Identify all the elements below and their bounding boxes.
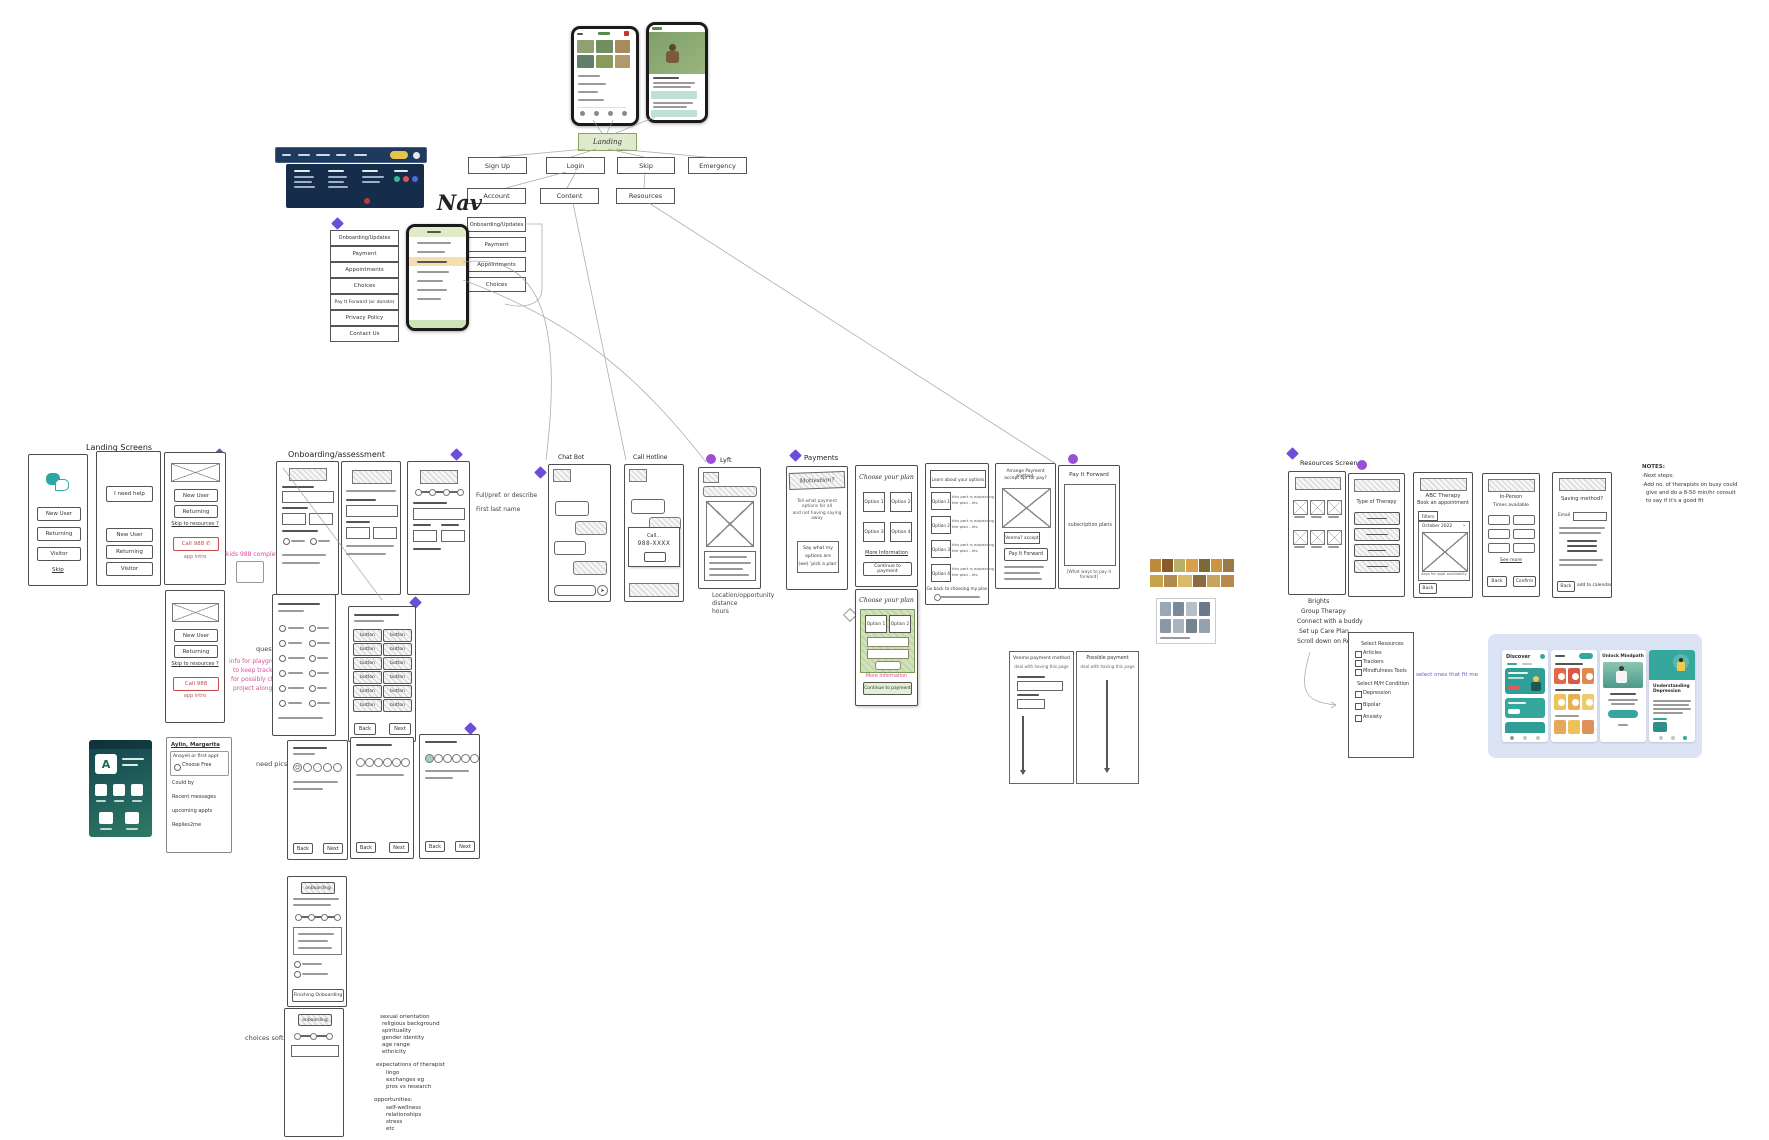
flow-node-skip[interactable]: Skip <box>617 157 675 174</box>
choice-button[interactable]: button <box>383 657 412 670</box>
emoji-circle[interactable] <box>356 758 365 767</box>
menu-row[interactable] <box>417 242 451 244</box>
subscription-plans-box[interactable]: subscription plans <box>1064 484 1116 566</box>
send-icon[interactable]: ➤ <box>597 585 608 596</box>
time-slot[interactable] <box>1513 515 1535 525</box>
input-field[interactable] <box>413 530 437 542</box>
menu-item-choices[interactable]: Choices <box>330 278 399 294</box>
plan-option-2[interactable]: Option 2 <box>931 516 951 534</box>
choice-button[interactable]: button <box>353 685 382 698</box>
wireframe-onboarding-form-1[interactable] <box>276 461 339 595</box>
play-icon[interactable] <box>1586 699 1593 706</box>
wireframe-mood-3[interactable]: Back Next <box>419 734 480 859</box>
wireframe-times-available[interactable]: In-Person Times available See more Back … <box>1482 473 1540 597</box>
back-button[interactable]: Back <box>1419 583 1437 594</box>
back-button[interactable]: Back <box>425 841 445 852</box>
messages-icon[interactable] <box>95 784 107 796</box>
nav-cta-button[interactable] <box>390 151 408 159</box>
call-confirm-button[interactable] <box>644 552 666 562</box>
visitor-button[interactable]: Visitor <box>106 562 153 576</box>
photo-thumb[interactable] <box>596 40 613 53</box>
stepper-dot[interactable] <box>443 489 450 496</box>
tabbar-icon[interactable] <box>1536 736 1540 740</box>
next-button[interactable]: Next <box>455 841 475 852</box>
emoji-circle-selected[interactable] <box>425 754 434 763</box>
plan-option-4[interactable]: Option 4 <box>931 564 951 582</box>
input-field[interactable] <box>373 527 397 539</box>
time-slot[interactable] <box>1513 529 1535 539</box>
card-line: Anayeli or first appt <box>173 754 218 759</box>
abc-therapy-label: ABC Therapy <box>1414 493 1472 499</box>
emoji-circle[interactable] <box>365 758 374 767</box>
circle-marker[interactable] <box>1068 454 1078 464</box>
tabbar-icon[interactable] <box>1659 736 1663 740</box>
text-line <box>425 770 469 772</box>
home-icon[interactable] <box>580 111 585 116</box>
filters-button[interactable]: Filters <box>1418 511 1438 521</box>
emoji-circle[interactable] <box>333 763 342 772</box>
menu-row[interactable] <box>417 280 443 282</box>
wireframe-arrange-payment[interactable]: Arrange Payment method, accept opt for p… <box>995 463 1056 589</box>
time-slot[interactable] <box>1488 515 1510 525</box>
plan-option-3[interactable]: Option 3 <box>931 540 951 558</box>
strip-photo <box>1174 559 1185 572</box>
add-to-calendar-link[interactable]: add to calendar <box>1577 583 1612 588</box>
input-field[interactable] <box>346 527 370 539</box>
menu-row[interactable] <box>417 289 447 291</box>
more-information-link[interactable]: More Information <box>856 674 917 679</box>
audio-card[interactable] <box>1554 720 1566 734</box>
call-988-button[interactable]: Call 988 ✆ <box>173 537 219 551</box>
flow-node-resources[interactable]: Resources <box>616 188 675 204</box>
plan-option-1[interactable]: Option 1 <box>863 492 885 512</box>
flow-node-signup[interactable]: Sign Up <box>468 157 527 174</box>
social-icon-red[interactable] <box>403 176 409 182</box>
emoji-circle[interactable] <box>374 758 383 767</box>
plan-row[interactable] <box>867 649 909 659</box>
usage-icon[interactable] <box>99 812 113 824</box>
new-user-button[interactable]: New User <box>106 528 153 542</box>
audio-card[interactable] <box>1568 694 1580 710</box>
flow-node-appointments[interactable]: Appointments <box>467 257 526 272</box>
time-slot[interactable] <box>1488 529 1510 539</box>
radio-placeholder[interactable] <box>279 670 286 677</box>
input-field[interactable] <box>282 491 334 503</box>
tabbar-icon-active[interactable] <box>1683 736 1687 740</box>
venmo-method-card[interactable]: Venmo payment method deal with having th… <box>1009 651 1074 784</box>
screen-understanding-depression[interactable]: Understanding Depression <box>1649 650 1695 742</box>
continue-payment-button[interactable]: Continue to payment <box>863 562 912 576</box>
audio-card[interactable] <box>1582 668 1594 684</box>
wireframe-resources-grid[interactable] <box>1288 471 1346 595</box>
more-information-link[interactable]: More Information <box>856 550 917 556</box>
wireframe-mood-1[interactable]: ☺ Back Next <box>287 740 348 860</box>
app-home-screenshot[interactable]: A <box>89 740 152 837</box>
email-input[interactable] <box>1573 512 1607 521</box>
checkbox[interactable] <box>1355 651 1362 658</box>
wireframe-book-appointment[interactable]: ABC Therapy Book an appointment Filters … <box>1413 472 1473 598</box>
phone-mockup-article[interactable] <box>646 22 708 123</box>
wireframe-motivation[interactable]: Motivation? Tell what payment options fo… <box>786 466 848 590</box>
emoji-circle[interactable] <box>470 754 479 763</box>
diamond-marker[interactable] <box>450 448 463 461</box>
emoji-circle[interactable] <box>383 758 392 767</box>
choice-button[interactable]: button <box>383 643 412 656</box>
emoji-circle[interactable] <box>313 763 322 772</box>
flow-node-content[interactable]: Content <box>540 188 599 204</box>
checkbox[interactable] <box>1355 660 1362 667</box>
wireframe-onboarding-tall-2[interactable]: onboarding <box>284 1008 344 1137</box>
checkbox[interactable] <box>1355 691 1362 698</box>
audio-card[interactable] <box>1554 694 1566 710</box>
resource-thumb[interactable] <box>1293 530 1308 545</box>
input-field[interactable] <box>1017 681 1063 691</box>
input-field[interactable] <box>309 513 333 525</box>
time-slot[interactable] <box>1513 543 1535 553</box>
chevron-icon[interactable]: › <box>1463 523 1465 529</box>
account-icon[interactable] <box>125 812 139 824</box>
see-more-link[interactable]: See more <box>1483 558 1539 563</box>
confirm-button[interactable]: Confirm <box>1513 576 1536 587</box>
photo-thumb[interactable] <box>615 55 630 68</box>
skip-resources-link[interactable]: Skip to resources ? <box>171 661 219 667</box>
visitor-button[interactable]: Visitor <box>37 547 81 561</box>
input-field[interactable] <box>282 513 306 525</box>
circle-marker[interactable] <box>706 454 716 464</box>
choice-button[interactable]: button <box>383 629 412 642</box>
profile-dot-icon[interactable] <box>1540 654 1545 659</box>
free-link-line[interactable] <box>1618 724 1628 726</box>
tabbar-home-icon[interactable] <box>1510 736 1514 740</box>
wireframe-pay-it-forward[interactable]: Pay It Forward subscription plans [What … <box>1058 465 1120 589</box>
underline <box>1567 545 1597 547</box>
photo-thumb[interactable] <box>615 40 630 53</box>
skip-resources-link[interactable]: Skip to resources ? <box>171 521 219 527</box>
possible-payment-card[interactable]: Possible payment deal with having this p… <box>1076 651 1139 784</box>
nav-avatar[interactable] <box>413 152 420 159</box>
new-user-button[interactable]: New User <box>37 507 81 521</box>
wireframe-question-list[interactable] <box>272 594 336 736</box>
topic-card[interactable] <box>1505 698 1545 718</box>
social-icon-blue[interactable] <box>412 176 418 182</box>
plan-option-2[interactable]: Option 2 <box>889 615 911 633</box>
input-field[interactable] <box>291 1045 339 1057</box>
calendar-panel[interactable]: October 2022 › days for appt availabilit… <box>1418 521 1470 581</box>
wireframe-button-grid[interactable]: buttonbutton buttonbutton buttonbutton b… <box>348 606 416 742</box>
returning-button[interactable]: Returning <box>106 545 153 559</box>
screen-audio-lessons[interactable] <box>1551 650 1597 742</box>
choice-button[interactable]: button <box>353 629 382 642</box>
diamond-marker[interactable] <box>331 217 344 230</box>
new-user-button[interactable]: New User <box>174 629 218 642</box>
search-icon[interactable] <box>594 111 599 116</box>
emoji-circle[interactable] <box>461 754 470 763</box>
stepper-dot[interactable] <box>415 489 422 496</box>
input-field[interactable] <box>441 530 465 542</box>
wireframe-onboarding-tall-1[interactable]: onboarding Finishing Onboarding <box>287 876 347 1007</box>
therapy-option-button[interactable] <box>1354 544 1400 557</box>
plan-option-1[interactable]: Option 1 <box>931 492 951 510</box>
chat-input[interactable] <box>554 585 596 596</box>
call-modal[interactable]: Call... 988-XXXX <box>628 527 680 567</box>
choice-button[interactable]: button <box>383 699 412 712</box>
resource-thumb[interactable] <box>1327 500 1342 515</box>
radio-placeholder[interactable] <box>294 971 301 978</box>
flow-node-landing[interactable]: Landing <box>578 133 637 151</box>
wireframe-saving-method[interactable]: Saving method? Email Back add to calenda… <box>1552 472 1612 598</box>
read-chip[interactable] <box>1508 685 1519 690</box>
wireframe-landing-logo[interactable]: New User Returning Visitor Skip <box>28 454 88 586</box>
play-icon[interactable] <box>1572 699 1579 706</box>
resource-thumb[interactable] <box>1310 530 1325 545</box>
app-tile-A[interactable]: A <box>95 754 117 774</box>
checkbox[interactable] <box>1355 669 1362 676</box>
audio-card[interactable] <box>1568 720 1580 734</box>
stepper-dot[interactable] <box>321 914 328 921</box>
plan-row[interactable] <box>867 637 909 647</box>
say-options-box[interactable]: Say what my options are (we) 'pick a pla… <box>797 541 839 573</box>
plan-pill[interactable] <box>875 661 901 670</box>
back-button[interactable]: Back <box>1557 581 1575 592</box>
discover-title: Discover <box>1506 654 1530 660</box>
diamond-marker[interactable] <box>789 449 802 462</box>
stepper-dot[interactable] <box>429 489 436 496</box>
stepper-dot[interactable] <box>308 914 315 921</box>
back-button[interactable]: Back <box>354 723 376 735</box>
menu-row[interactable] <box>417 251 445 253</box>
next-button[interactable]: Next <box>389 723 411 735</box>
topic-card-partial[interactable] <box>1505 722 1545 733</box>
play-icon[interactable] <box>1572 673 1579 680</box>
go-back-link[interactable]: Go back to choosing my plan <box>926 586 988 591</box>
emoji-circle[interactable] <box>452 754 461 763</box>
subscribe-button[interactable] <box>1608 710 1638 718</box>
resource-thumb[interactable] <box>1327 530 1342 545</box>
emoji-circle[interactable] <box>323 763 332 772</box>
flow-node-payment[interactable]: Payment <box>467 237 526 252</box>
tabbar-icon[interactable] <box>1671 736 1675 740</box>
stepper-dot[interactable] <box>310 1033 317 1040</box>
website-footer-screenshot[interactable] <box>286 164 424 208</box>
stepper-dot[interactable] <box>294 1033 301 1040</box>
checkbox[interactable] <box>1355 703 1362 710</box>
radio-placeholder[interactable] <box>279 685 286 692</box>
photo-thumb[interactable] <box>577 40 594 53</box>
skip-link[interactable]: Skip <box>52 567 64 573</box>
therapy-option-button[interactable] <box>1354 528 1400 541</box>
tabbar-icon[interactable] <box>1523 736 1527 740</box>
choice-button[interactable]: button <box>353 657 382 670</box>
next-button[interactable]: Next <box>389 842 409 853</box>
topic-card[interactable] <box>1505 668 1545 694</box>
emoji-circle[interactable] <box>303 763 312 772</box>
menu-item-appointments[interactable]: Appointments <box>330 262 399 278</box>
wireframe-landing-help[interactable]: I need help New User Returning Visitor <box>96 451 161 586</box>
stepper-dot[interactable] <box>326 1033 333 1040</box>
related-thumb[interactable] <box>1653 722 1667 732</box>
plan-option-2[interactable]: Option 2 <box>890 492 912 512</box>
next-button[interactable]: Next <box>323 843 343 854</box>
plan-option-1[interactable]: Option 1 <box>865 615 887 633</box>
phone-mockup-home[interactable] <box>571 26 639 126</box>
wireframe-landing-intro[interactable]: New User Returning Skip to resources ? C… <box>164 452 226 585</box>
photo-thumb[interactable] <box>596 55 613 68</box>
choice-button[interactable]: button <box>383 685 412 698</box>
wireframe-onboarding-form-2[interactable] <box>341 461 401 595</box>
strip-photo <box>1199 559 1210 572</box>
diamond-marker[interactable] <box>534 466 547 479</box>
tab-pill[interactable] <box>1579 653 1593 659</box>
call-988-button[interactable]: Call 988 <box>173 677 219 691</box>
back-button[interactable]: Back <box>1487 576 1507 587</box>
radio-placeholder[interactable] <box>279 640 286 647</box>
plan-option-4[interactable]: Option 4 <box>890 522 912 542</box>
photo-thumb[interactable] <box>577 55 594 68</box>
diamond-marker[interactable] <box>464 722 477 735</box>
choice-button[interactable]: button <box>353 643 382 656</box>
audio-card[interactable] <box>1582 694 1594 710</box>
flow-node-choices[interactable]: Choices <box>467 277 526 292</box>
account-notes-card[interactable]: Aylin, Margarita Anayeli or first appt C… <box>166 737 232 853</box>
wireframe-onboarding-form-3[interactable] <box>407 461 470 595</box>
social-icon-teal[interactable] <box>394 176 400 182</box>
finish-onboarding-button[interactable]: Finishing Onboarding <box>292 989 344 1002</box>
list-row[interactable] <box>578 91 598 93</box>
play-icon[interactable] <box>1558 673 1565 680</box>
returning-button[interactable]: Returning <box>174 645 218 658</box>
plan-option-3[interactable]: Option 3 <box>863 522 885 542</box>
returning-button[interactable]: Returning <box>174 505 218 518</box>
empty-note-box[interactable] <box>236 561 264 583</box>
menu-row-highlighted[interactable] <box>409 257 466 266</box>
tab-active[interactable] <box>1507 663 1517 665</box>
time-slot[interactable] <box>1488 543 1510 553</box>
illustration-body <box>1531 682 1541 691</box>
wireframe-lyft[interactable] <box>698 467 761 589</box>
wireframe-landing-intro-2[interactable]: New User Returning Skip to resources ? C… <box>165 590 225 723</box>
checkbox[interactable] <box>1355 715 1362 722</box>
audio-card[interactable] <box>1582 720 1594 734</box>
heart-icon[interactable] <box>608 111 613 116</box>
therapy-option-button[interactable] <box>1354 512 1400 525</box>
choice-button[interactable]: button <box>353 671 382 684</box>
play-icon[interactable] <box>1558 699 1565 706</box>
contacts-icon[interactable] <box>131 784 143 796</box>
resource-thumb[interactable] <box>1293 500 1308 515</box>
list-row[interactable] <box>578 99 604 101</box>
radio-placeholder[interactable] <box>309 640 316 647</box>
lyft-caption-line: Location/opportunity <box>712 592 774 599</box>
menu-row[interactable] <box>417 298 441 300</box>
screen-unlock-mindpath[interactable]: Unlock Mindpath <box>1600 650 1646 742</box>
emoji-circle[interactable] <box>401 758 410 767</box>
slider-track[interactable] <box>940 596 980 598</box>
diamond-marker[interactable] <box>1286 447 1299 460</box>
continue-payment-button[interactable]: Continue to payment <box>863 682 912 695</box>
radio-placeholder[interactable] <box>309 700 316 707</box>
new-user-button[interactable]: New User <box>174 489 218 502</box>
wireframe-call-hotline[interactable]: Call... 988-XXXX <box>624 464 684 602</box>
flow-node-emergency[interactable]: Emergency <box>688 157 747 174</box>
pay-it-forward-button[interactable]: Pay It Forward <box>1004 548 1048 561</box>
input-field[interactable] <box>346 505 398 517</box>
circle-marker[interactable] <box>1357 460 1367 470</box>
wireframe-choose-plan[interactable]: Choose your plan Option 1 Option 2 Optio… <box>855 465 918 587</box>
returning-button[interactable]: Returning <box>37 527 81 541</box>
stepper-dot[interactable] <box>295 914 302 921</box>
wireframe-choose-plan-green[interactable]: Choose your plan Option 1 Option 2 More … <box>855 589 918 706</box>
stepper-dot[interactable] <box>334 914 341 921</box>
radio-placeholder[interactable] <box>279 655 286 662</box>
radio-placeholder[interactable] <box>174 764 181 771</box>
menu-item-privacy[interactable]: Privacy Policy <box>330 310 399 326</box>
choice-button[interactable]: button <box>383 671 412 684</box>
tab[interactable] <box>1522 663 1532 665</box>
wireframe-therapy-type[interactable]: Type of Therapy <box>1348 473 1405 597</box>
audio-card[interactable] <box>1554 668 1566 684</box>
radio-placeholder[interactable] <box>309 625 316 632</box>
profile-icon[interactable] <box>622 111 627 116</box>
radio-placeholder[interactable] <box>283 538 290 545</box>
radio-placeholder[interactable] <box>310 538 317 545</box>
calendar-icon[interactable] <box>113 784 125 796</box>
back-button[interactable]: Back <box>356 842 376 853</box>
select-resources-checklist[interactable]: Select Resources Articles Trackers Mindf… <box>1348 632 1414 758</box>
smiley-icon[interactable]: ☺ <box>293 763 302 772</box>
flow-node-login[interactable]: Login <box>546 157 605 174</box>
venmo-accept-box[interactable]: Venmo? accept <box>1004 532 1040 544</box>
choice-button[interactable]: button <box>353 699 382 712</box>
emoji-circle[interactable] <box>392 758 401 767</box>
title-line <box>354 614 399 616</box>
flow-node-onboarding[interactable]: Onboarding/Updates <box>467 217 526 232</box>
resources-link-line[interactable] <box>1653 718 1667 720</box>
input-field[interactable] <box>1017 699 1045 709</box>
wireframe-chat-bot[interactable]: ➤ <box>548 464 611 602</box>
radio-placeholder[interactable] <box>279 700 286 707</box>
therapy-option-button[interactable] <box>1354 560 1400 573</box>
menu-row[interactable] <box>417 271 449 273</box>
phone-mockup-menu[interactable] <box>406 224 469 331</box>
chip[interactable] <box>1508 709 1520 714</box>
radio-placeholder[interactable] <box>309 655 316 662</box>
menu-item-payitforward[interactable]: Pay It Forward (or donate) <box>330 294 399 310</box>
input-field[interactable] <box>413 508 465 520</box>
wireframe-mood-2[interactable]: Back Next <box>350 737 414 859</box>
menu-item-onboarding[interactable]: Onboarding/Updates <box>330 230 399 246</box>
need-help-button[interactable]: I need help <box>106 486 153 502</box>
back-button[interactable]: Back <box>293 843 313 854</box>
emoji-circle[interactable] <box>434 754 443 763</box>
chat-input-placeholder[interactable] <box>629 583 679 597</box>
radio-placeholder[interactable] <box>309 670 316 677</box>
emoji-circle[interactable] <box>443 754 452 763</box>
screen-discover[interactable]: Discover <box>1502 650 1548 742</box>
radio-placeholder[interactable] <box>309 685 316 692</box>
play-icon[interactable] <box>1586 673 1593 680</box>
website-navbar-screenshot[interactable] <box>275 147 427 163</box>
resource-thumb[interactable] <box>1310 500 1325 515</box>
wireframe-learn-options[interactable]: Learn about your options Option 1 this p… <box>925 463 989 605</box>
menu-item-contact[interactable]: Contact Us <box>330 326 399 342</box>
audio-card[interactable] <box>1568 668 1580 684</box>
stepper-dot[interactable] <box>457 489 464 496</box>
menu-item-payment[interactable]: Payment <box>330 246 399 262</box>
radio-placeholder[interactable] <box>279 625 286 632</box>
radio-placeholder[interactable] <box>294 961 301 968</box>
list-row[interactable] <box>578 83 606 85</box>
list-row[interactable] <box>578 75 600 77</box>
